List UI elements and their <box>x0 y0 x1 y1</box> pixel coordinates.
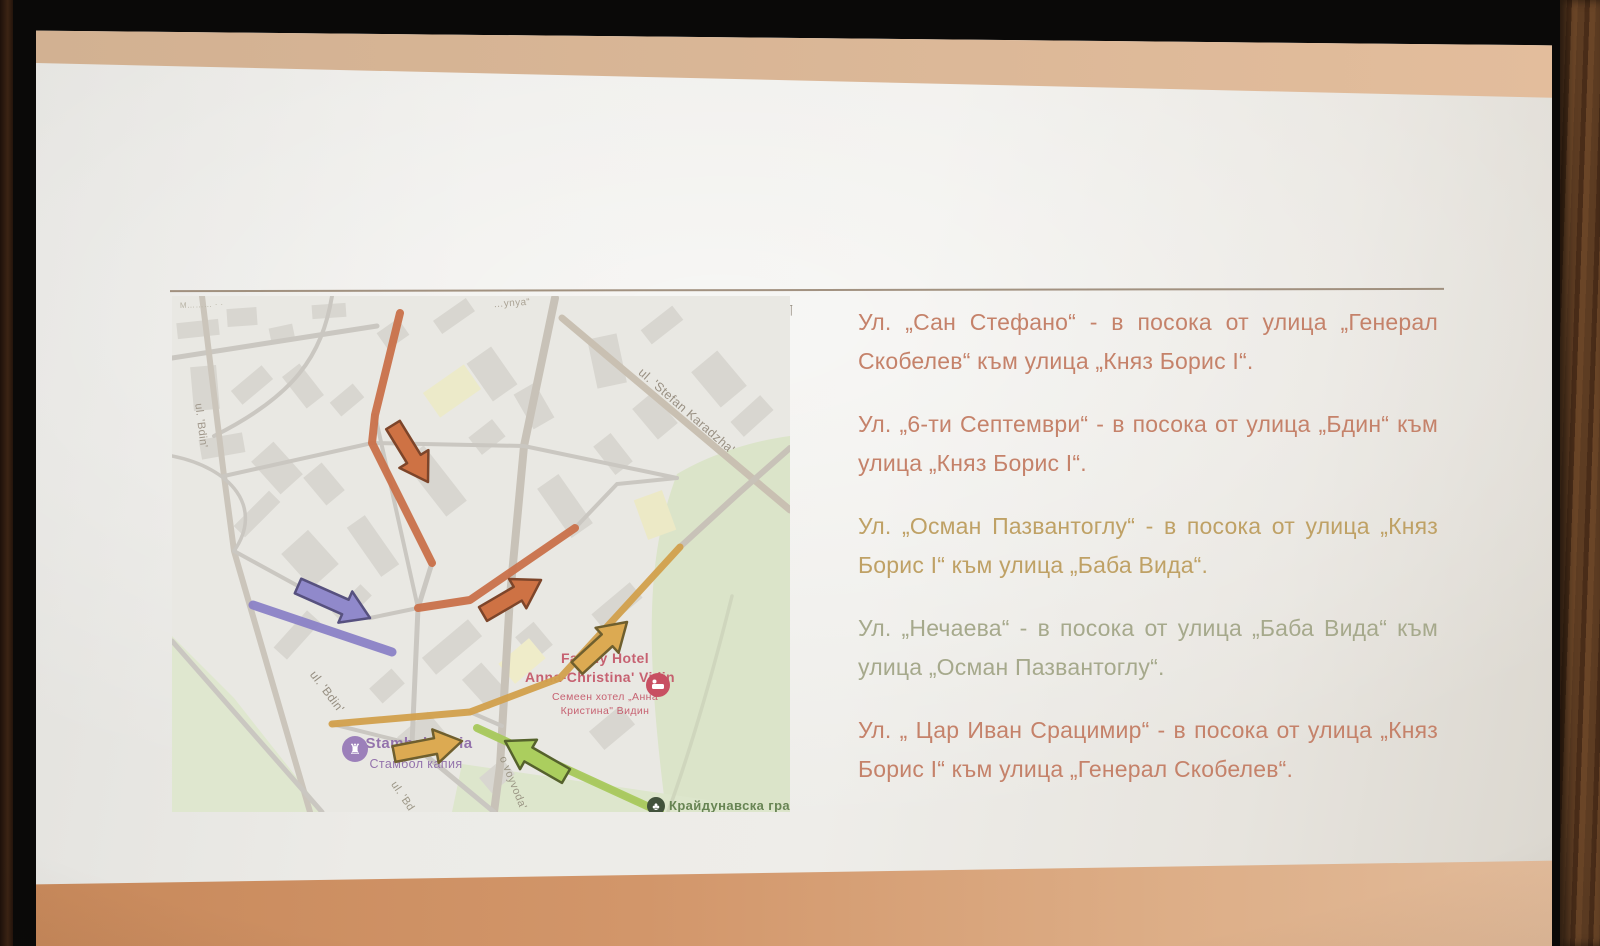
photographed-slide: ¶ <box>0 0 1600 946</box>
map-figure: M……… · ·…ynya“ul. 'Bdin'ul. 'Bdin'ul. 'S… <box>172 296 790 812</box>
horizontal-rule <box>170 288 1444 292</box>
vidin-map: M……… · ·…ynya“ul. 'Bdin'ul. 'Bdin'ul. 'S… <box>172 296 790 812</box>
paragraph-san-stefano: Ул. „Сан Стефано“ - в посока от улица „Г… <box>858 303 1438 381</box>
wood-wall-left <box>0 0 13 946</box>
svg-text:♜: ♜ <box>349 741 362 757</box>
paragraph-osman-pazvantoglu: Ул. „Осман Пазвантоглу“ - в посока от ул… <box>858 507 1438 585</box>
paragraph-nechaeva: Ул. „Нечаева“ - в посока от улица „Баба … <box>858 609 1438 687</box>
map-label: Кристина" Видин <box>561 705 650 717</box>
svg-text:♣: ♣ <box>652 801 659 812</box>
wood-wall-right <box>1560 0 1600 946</box>
map-label: Крайдунавска град <box>669 798 790 812</box>
slide-bottom-band <box>36 858 1552 946</box>
slide-top-band <box>36 26 1552 100</box>
paragraph-6-ti-septemvri: Ул. „6-ти Септември“ - в посока от улица… <box>858 405 1438 483</box>
map-label: M……… · · <box>180 299 224 310</box>
paragraph-tsar-ivan-sratsimir: Ул. „ Цар Иван Срацимир“ - в посока от у… <box>858 711 1438 789</box>
map-label: Семеен хотел „Анна <box>552 691 658 703</box>
street-directions-text: Ул. „Сан Стефано“ - в посока от улица „Г… <box>858 303 1438 813</box>
slide: ¶ <box>36 26 1552 946</box>
